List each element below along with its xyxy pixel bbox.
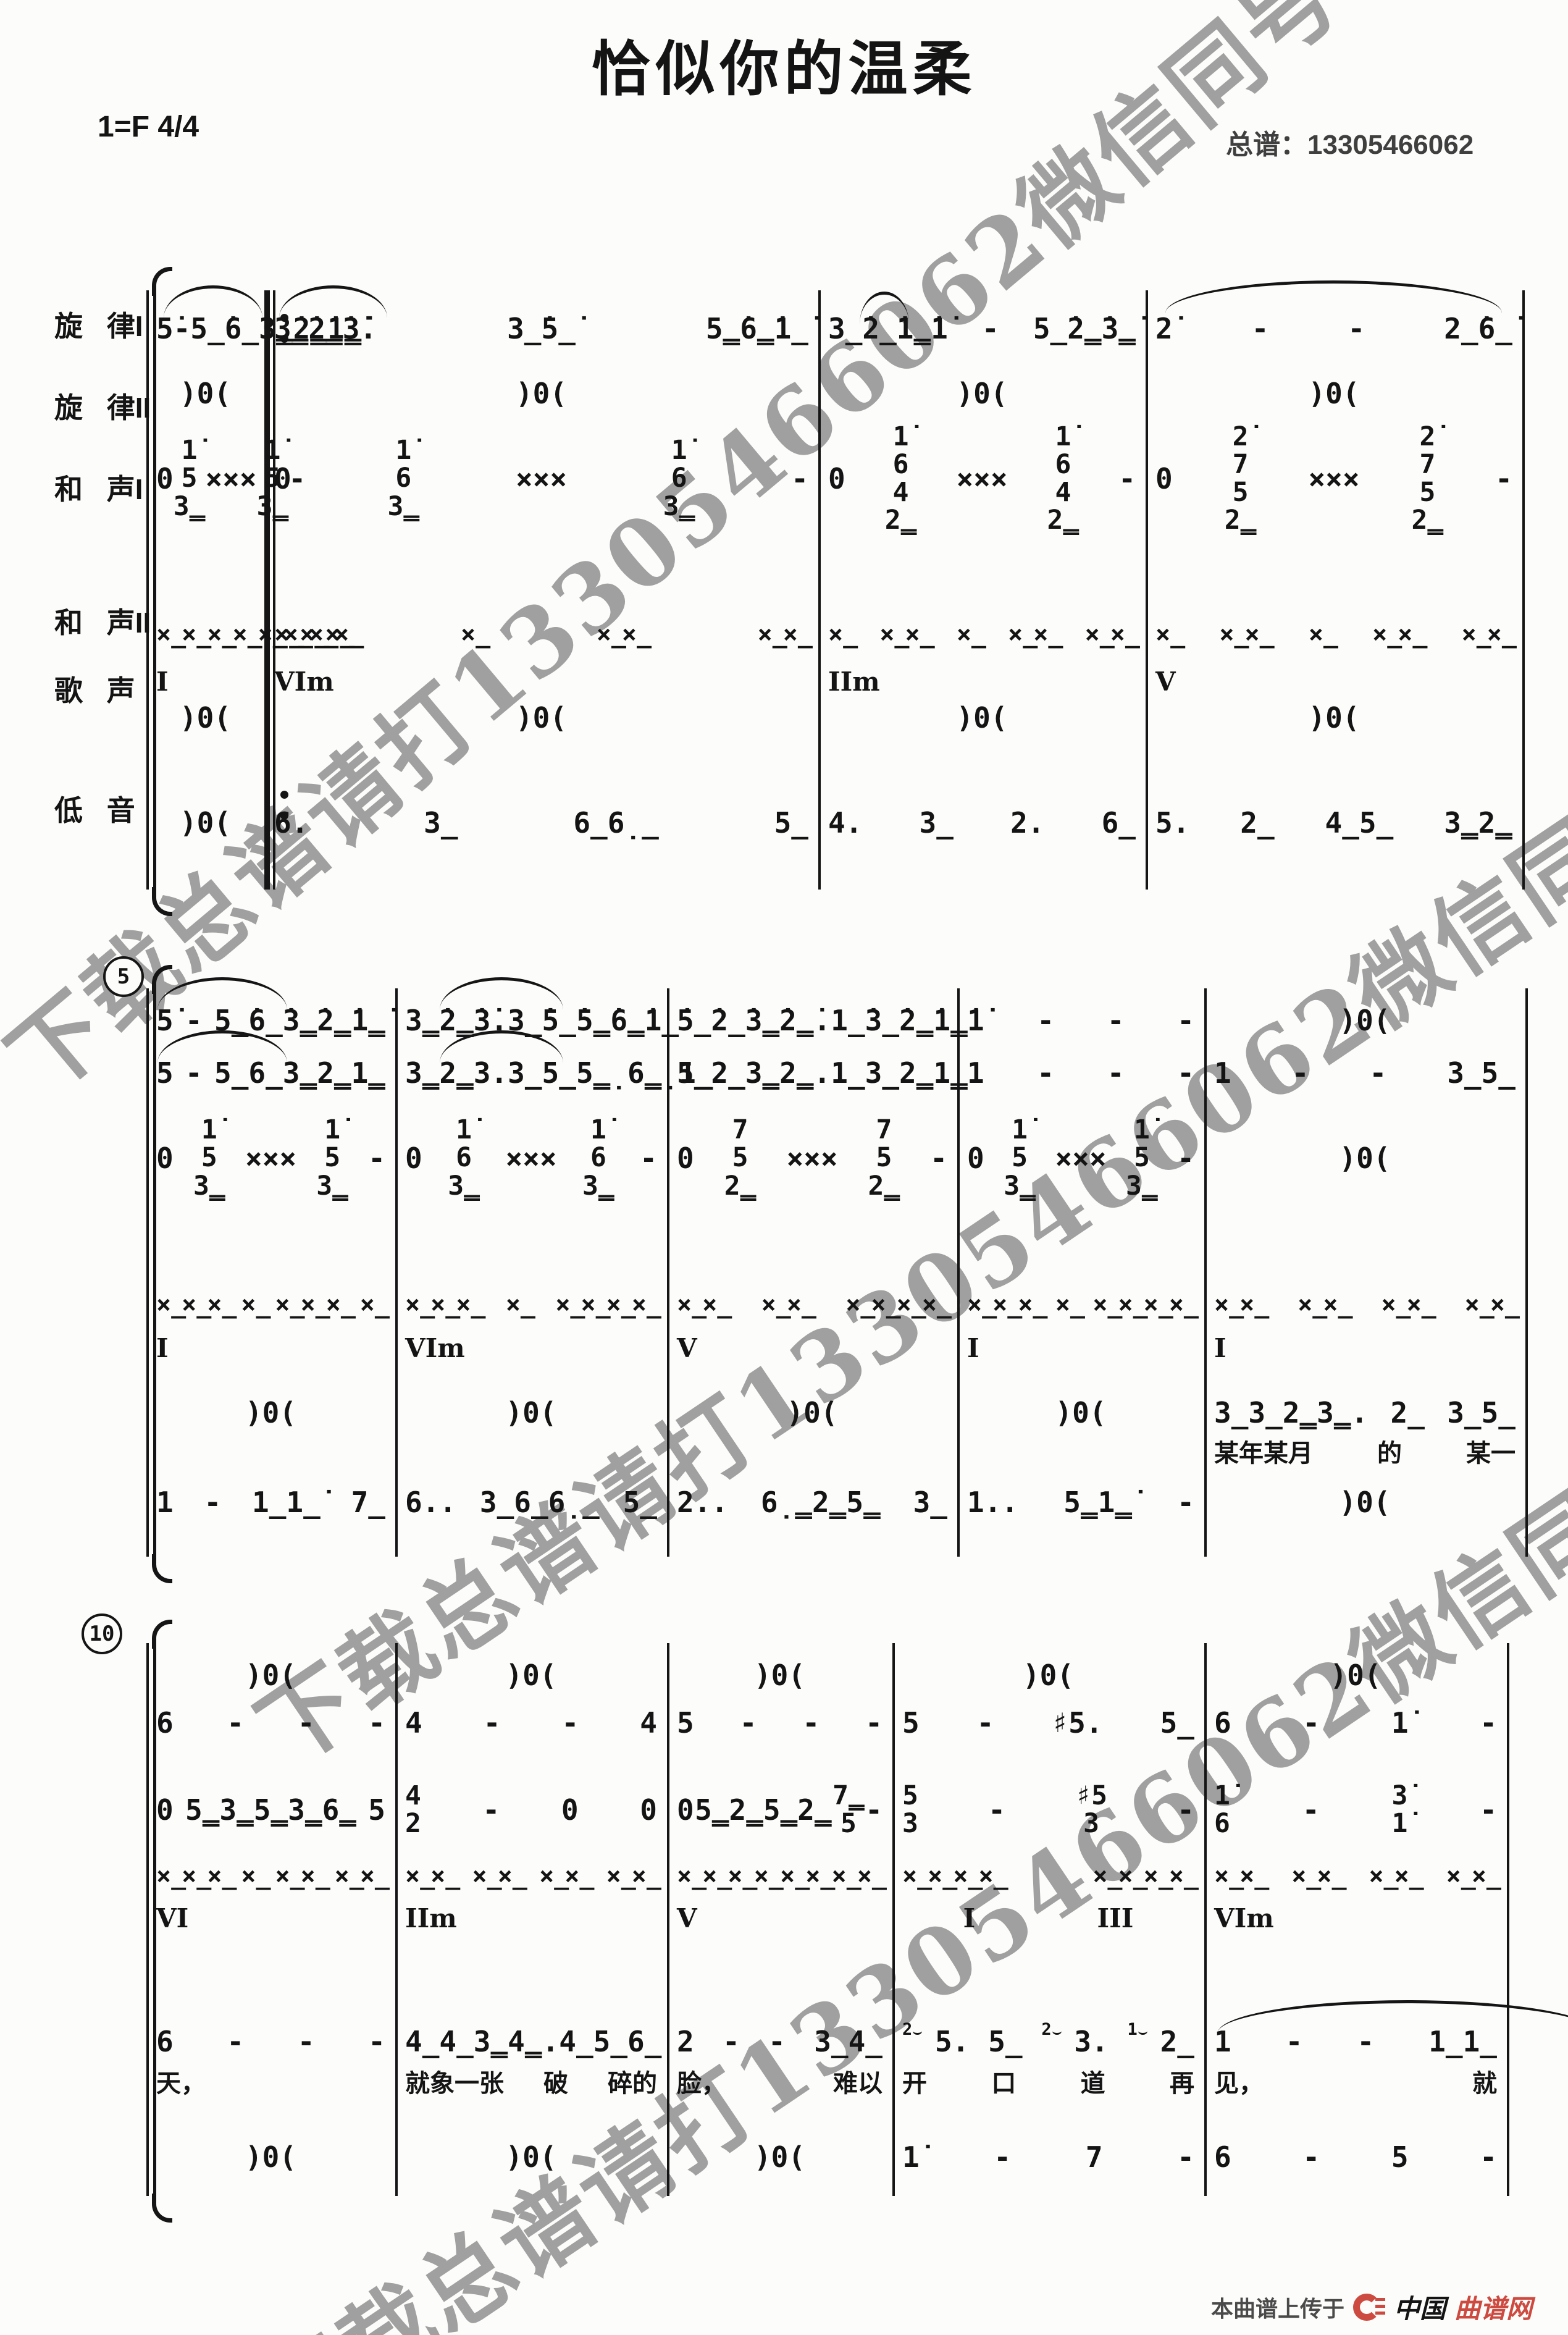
note-token: )0( (1339, 1486, 1390, 1519)
note-token: - (1107, 1056, 1125, 1090)
measure-cell: VI (146, 1895, 395, 1941)
chord-stack: 1̇53̳ (193, 1116, 225, 1200)
measure-cell: 0752̳×××752̳- (667, 1093, 957, 1223)
note-token: 0 (156, 1142, 174, 1175)
note-token: 4̲ (559, 2025, 593, 2058)
note-token: 7̲ (351, 1486, 385, 1519)
site-name-black: 中国 (1394, 2288, 1446, 2326)
note-token: ×̲×̲ (1462, 620, 1512, 649)
note-token: 7 (1086, 2140, 1103, 2174)
site-footer: 本曲谱上传于 中国 曲谱网 (1211, 2288, 1532, 2326)
measure-cell: 就象一张破碎的 (395, 2058, 667, 2104)
note-token: 5̲̇2̲̇3̳̇2̳̇. (677, 1004, 831, 1037)
note-token: ××× (505, 1142, 556, 1175)
note-token: ×̲×̲ (1214, 1290, 1265, 1319)
note-token: - (1480, 1706, 1497, 1740)
measure-cell: 6..3̲6̲6̣̲5̲ (395, 1479, 667, 1525)
note-token: - (1177, 1486, 1194, 1519)
score-page: 恰似你的温柔 1=F 4/4 总谱：13305466062 下载总谱请打1330… (0, 0, 1568, 2335)
note-token: )0( (516, 701, 567, 734)
note-token: - (1480, 1793, 1497, 1827)
note-token: - (740, 1706, 757, 1740)
bracket-hook-top (152, 1620, 172, 1649)
note-token: 2̲ (1240, 806, 1274, 839)
measure-cell: 01̇53̳×××1̇53̳- (146, 1093, 395, 1223)
note-token: ×̲ (828, 620, 853, 649)
row-melody1: 5̇-5̲̇6̲̇3̳̇2̳̇1̳̇3̳̇2̳̇3̇.3̲̇5̲̇5̳̇6̳̇1… (146, 998, 1525, 1043)
note-token: 4 (640, 1706, 657, 1740)
chord-stack: 1̇63̳ (387, 437, 419, 520)
note-token: - (562, 1706, 579, 1740)
note-token: 3̲ (424, 806, 458, 839)
note-token: 2 (677, 2025, 694, 2058)
note-token: 5̳̇6̳̇1̲̇ (706, 312, 808, 345)
measure-cell: )0( (1204, 1479, 1525, 1525)
note-token: ××× (205, 462, 256, 495)
note-token: 难以 (833, 2063, 883, 2099)
note-token: - (484, 1706, 501, 1740)
score-phone-label: 总谱：13305466062 (1226, 122, 1474, 162)
note-token: - (368, 1142, 385, 1175)
bracket-hook-bottom (152, 887, 172, 916)
note-token: )0( (245, 2140, 296, 2174)
note-token: 5 (902, 1706, 920, 1740)
note-token: 6̣̳2̳5̳ (761, 1486, 881, 1519)
row-vlyrics: 某年某月的某一 (146, 1428, 1525, 1474)
chord-stack: 752̳ (868, 1116, 900, 1200)
note-token: ×̲×̲ (761, 1290, 812, 1319)
note-token: 0 (405, 1142, 422, 1175)
note-token: 0 (274, 462, 291, 495)
measure-cell: 4--4 (395, 1700, 667, 1746)
row-harmony2: ×̲×̲×̲×̲×̲×̲×̲×̲×̲×̲×̲×̲×̲×̲×̲×̲×̲×̲×̲×̲… (146, 1282, 1525, 1327)
note-token: 5̲̇2̳̇3̳̇ (1033, 312, 1136, 345)
note-token: ×̲×̲×̲ (156, 1862, 233, 1890)
row-melody2: )0()0()0()0( (146, 371, 1522, 416)
measure-cell: I (1204, 1325, 1525, 1371)
repeat-dot (280, 791, 288, 799)
note-token: ×̲ (233, 620, 258, 649)
note-token: - (865, 1706, 883, 1740)
measure-cell: 02̇752̳×××2̇752̳- (1146, 414, 1522, 544)
note-token: 0 (640, 1793, 657, 1827)
note-token: 5 (1391, 2140, 1409, 2174)
note-token: ×̲ (241, 1290, 266, 1319)
note-token: 3̲2̳1̳ (865, 1056, 968, 1090)
note-token: ×̲×̲ (1214, 1862, 1265, 1890)
note-token: 1̲̇ (831, 1004, 865, 1037)
chord-stack: 1̇63̳ (448, 1116, 480, 1200)
measure-cell: 某年某月的某一 (1204, 1428, 1525, 1474)
note-token: ×̲×̲ (1008, 620, 1059, 649)
note-token: V (677, 1333, 697, 1363)
note-token: ×̲ (506, 1290, 531, 1319)
note-token: )0( (786, 1396, 837, 1429)
measure-number-marker: 5 (103, 956, 144, 997)
note-token: ×̲×̲ (1298, 1290, 1348, 1319)
measure-cell: 01̇53̳×××1̇53̳- (957, 1093, 1204, 1223)
note-token: ×̲×̲×̲ (156, 1290, 233, 1319)
chord-stack: 1̇53̳ (1126, 1116, 1158, 1200)
note-token: ×̲×̲ (832, 1862, 883, 1890)
measure-cell: VIm (1204, 1895, 1507, 1941)
row-bass: )0(6.3̲6̲6̣̲5̲4.3̲2.6̲5.2̲4̲5̲3̳2̳ (146, 800, 1522, 846)
measure-cell: )0( (264, 371, 818, 416)
note-token: 4. (828, 806, 862, 839)
note-token: 1̇ (967, 1004, 984, 1037)
measure-cell (395, 1428, 667, 1474)
measure-cell: 2..6̣̳2̳5̳3̲ (667, 1479, 957, 1525)
note-token: 6.. (405, 1486, 456, 1519)
part-label-harmony2: 和 声II (54, 600, 199, 641)
note-token: 5̳1̳̇ (1063, 1486, 1132, 1519)
note-token: VIm (274, 667, 334, 697)
note-token: 6 (156, 1706, 174, 1740)
note-token: 开 (902, 2063, 927, 2099)
note-token: 2̇ (1155, 312, 1173, 345)
note-token: - (204, 1486, 222, 1519)
grace-note: 2 (1041, 2020, 1061, 2039)
measure-cell: ×̲×̲×̲×̲×̲×̲×̲×̲ (395, 1853, 667, 1899)
measure-cell: 6--- (146, 1700, 395, 1746)
note-token: I (156, 1333, 169, 1363)
note-token: 0 (677, 1142, 694, 1175)
note-token: 6 (1214, 2140, 1231, 2174)
note-token: 3̲ (920, 806, 954, 839)
note-token: ×̲×̲ (1372, 620, 1423, 649)
note-token: - (483, 1793, 500, 1827)
measure-cell: 1--3̲5̲ (1204, 1050, 1525, 1096)
slur-tie (1165, 280, 1502, 313)
measure-cell: )0( (395, 2134, 667, 2180)
measure-cell: IIII (892, 1895, 1204, 1941)
note-token: - (1177, 1793, 1194, 1827)
note-token: - (368, 2025, 385, 2058)
bracket-hook-top (152, 965, 172, 994)
note-token: )0( (754, 2140, 805, 2174)
note-token: I (963, 1903, 976, 1933)
measure-cell: V (667, 1325, 957, 1371)
note-token: 就 (1472, 2063, 1497, 2099)
note-token: 3̲3̲2̳3̳. (1214, 1396, 1368, 1429)
system-1: 5̇-5̲̇6̲̇3̳̇2̳̇1̳̇3̳̇2̳̇3̇.3̲̇5̲̇5̳̇6̳̇1… (146, 290, 1522, 890)
row-melody2: 6---4--45---5-♯5.5̲6-1̇- (146, 1700, 1507, 1746)
note-token: 道 (1081, 2063, 1105, 2099)
system-2: 55̇-5̲̇6̲̇3̳̇2̳̇1̳̇3̳̇2̳̇3̇.3̲̇5̲̇5̳̇6̳̇… (146, 988, 1525, 1557)
note-token: 5. (935, 2025, 969, 2058)
note-token: ×̲×̲ (1465, 1290, 1516, 1319)
note-token: 破 (543, 2063, 568, 2099)
note-token: ××× (1055, 1142, 1106, 1175)
note-token: 5̲ (774, 806, 808, 839)
measure-cell: )0( (395, 1652, 667, 1698)
measure-cell: 4̲4̲3̳4̳.4̲5̲6̲ (395, 2019, 667, 2064)
measure-cell: ×̲×̲×̲×̲×̲×̲×̲×̲ (818, 612, 1146, 657)
measure-cell: ×̲×̲×̲×̲×̲×̲×̲×̲ (892, 1853, 1204, 1899)
chord-stack: 1̇53̳ (1004, 1116, 1036, 1200)
chord-stack: 1̇63̳ (663, 437, 695, 520)
measure-cell: 天， (146, 2058, 395, 2104)
measure-cell: 6--- (146, 2019, 395, 2064)
key-signature: 1=F 4/4 (98, 110, 199, 144)
note-token: I (1214, 1333, 1226, 1363)
note-token: - (723, 2025, 740, 2058)
note-token: ×̲×̲ (606, 1862, 657, 1890)
row-melody1: )0()0()0()0()0( (146, 1652, 1507, 1698)
note-token: ×̲×̲ (1219, 620, 1270, 649)
uploaded-by-text: 本曲谱上传于 (1211, 2291, 1344, 2323)
slur-tie (1218, 2000, 1568, 2033)
note-token: 0 (156, 1793, 174, 1827)
chord-stack: ♯53 (1075, 1782, 1107, 1838)
note-token: )0( (245, 1396, 296, 1429)
note-token: - (1495, 462, 1512, 495)
measure-cell: 5̲2̲3̳2̳.1̲3̲2̳1̳ (667, 1050, 957, 1096)
note-token: )0( (956, 377, 1007, 410)
site-name-red: 曲谱网 (1454, 2288, 1532, 2326)
note-token: 1̇ (1391, 1706, 1409, 1740)
part-label-melody2: 旋 律II (54, 385, 199, 426)
chord-stack: 1̇642̳ (1047, 423, 1080, 535)
bracket-hook-top (152, 267, 172, 296)
chord-stack: 7̳5 (832, 1782, 865, 1838)
note-token: - (994, 2140, 1011, 2174)
row-bass: 1-1̲1̲̇7̲6..3̲6̲6̣̲5̲2..6̣̳2̳5̳3̲1..5̳1̇… (146, 1479, 1525, 1525)
note-token: 3̲5̲ (1447, 1056, 1516, 1090)
note-token: - (1177, 1004, 1194, 1037)
slur-tie (860, 292, 909, 324)
note-token: 的 (1377, 1433, 1402, 1469)
chord-stack: 42 (405, 1782, 421, 1838)
note-token: ×̲×̲ (677, 1290, 727, 1319)
note-token: 1̲ (831, 1056, 865, 1090)
measure-cell: ×̲×̲×̲×̲×̲×̲×̲×̲ (667, 1853, 892, 1899)
part-label-harmony1: 和 声I (54, 467, 199, 508)
note-token: IIm (405, 1903, 457, 1933)
note-token: 某年某月 (1214, 1433, 1313, 1469)
note-token: VI (156, 1903, 188, 1933)
note-token: 见， (1214, 2063, 1264, 2099)
note-token: ×̲×̲ (1381, 1290, 1432, 1319)
measure-cell: VIm (395, 1325, 667, 1371)
note-token: - (803, 1706, 820, 1740)
note-token: 6 (1214, 1706, 1231, 1740)
note-token: ××× (516, 462, 567, 495)
note-token: - (298, 2025, 315, 2058)
measure-cell: )0( (667, 2134, 892, 2180)
note-token: 某一 (1466, 1433, 1516, 1469)
measure-cell: )0( (264, 695, 818, 741)
note-token: 6̲ (1102, 806, 1136, 839)
note-token: - (988, 1793, 1005, 1827)
note-token: - (791, 462, 808, 495)
system-3: 10)0()0()0()0()0(6---4--45---5-♯5.5̲6-1̇… (146, 1643, 1507, 2196)
measure-cell: I (146, 1325, 395, 1371)
note-token: ×̲×̲×̲×̲ (1092, 1862, 1194, 1890)
measure-cell: ×̲×̲×̲×̲×̲×̲×̲×̲ (395, 1282, 667, 1327)
note-token: 0 (828, 462, 845, 495)
note-token: - (1302, 1793, 1320, 1827)
note-token: 4 (405, 1706, 422, 1740)
note-token: 3̲5̲ (1447, 1396, 1516, 1429)
note-token: - (1118, 462, 1136, 495)
chord-stack: 1̇6 (1214, 1782, 1230, 1838)
measure-cell: ×̲×̲×̲×̲×̲×̲×̲×̲ (1204, 1853, 1507, 1899)
measure-cell: 01̇642̳×××1̇642̳- (818, 414, 1146, 544)
note-token: )0( (1308, 701, 1359, 734)
note-token: ××× (245, 1142, 296, 1175)
note-token: ×̲×̲×̲ (405, 1290, 482, 1319)
note-token: )0( (1330, 1659, 1381, 1692)
note-token: 2̲ (1391, 1396, 1425, 1429)
note-token: 5 (368, 1793, 385, 1827)
measure-cell: ×̲×̲×̲×̲×̲×̲×̲×̲ (264, 612, 818, 657)
note-token: ×̲×̲ (597, 620, 647, 649)
note-token: 碎的 (608, 2063, 657, 2099)
measure-number-marker: 10 (82, 1613, 122, 1654)
note-token: ×̲×̲×̲ (275, 1290, 351, 1319)
note-token: )0( (505, 1396, 556, 1429)
measure-cell: ×̲×̲×̲×̲×̲×̲×̲×̲ (1146, 612, 1522, 657)
slur-tie (440, 977, 563, 1010)
note-token: 1 (1214, 1056, 1231, 1090)
note-token: - (227, 2025, 244, 2058)
note-token: ×̲×̲ (539, 1862, 590, 1890)
note-token: - (1177, 1056, 1194, 1090)
measure-cell: 25.5̲23.12̲ (892, 2019, 1204, 2064)
note-token: 3̲ (913, 1486, 947, 1519)
note-token: )0( (754, 1659, 805, 1692)
note-token: 3̲̇5̲̇ (507, 312, 576, 345)
chord-stack: 2̇752̳ (1225, 423, 1257, 535)
measure-cell: )0( (146, 2134, 395, 2180)
measure-cell: V (667, 1895, 892, 1941)
note-token: - (1369, 1056, 1386, 1090)
note-token: - (982, 312, 999, 345)
measure-cell: 1̇--- (957, 998, 1204, 1043)
measure-cell: ×̲×̲×̲×̲×̲×̲×̲×̲ (146, 1853, 395, 1899)
measure-cell: 1̇-7- (892, 2134, 1204, 2180)
measure-cell: )0( (1146, 695, 1522, 741)
note-token: 5̳3̳5̳3̳6̳ (185, 1793, 356, 1827)
note-token: )0( (505, 2140, 556, 2174)
row-harmony1: 01̇53̳×××1̇53̳-01̇63̳×××1̇63̳-0752̳×××75… (146, 1093, 1525, 1223)
note-token: 3̲̇2̳̇1̳̇ (865, 1004, 968, 1037)
note-token: - (977, 1706, 994, 1740)
measure-cell (146, 1428, 395, 1474)
row-harmony2: ×̲×̲×̲×̲×̲×̲×̲×̲×̲×̲×̲×̲×̲×̲×̲×̲×̲×̲×̲×̲… (146, 1853, 1507, 1899)
note-token: 口 (991, 2063, 1016, 2099)
note-token: - (1348, 312, 1365, 345)
note-token: ×̲×̲×̲ (967, 1290, 1044, 1319)
note-token: ×̲ (360, 1290, 385, 1319)
note-token: 2. (1010, 806, 1044, 839)
note-token: ×̲×̲ (1085, 620, 1136, 649)
note-token: 1 (156, 1486, 174, 1519)
measure-cell (957, 1428, 1204, 1474)
measure-cell: 1-1̲1̲̇7̲ (146, 1479, 395, 1525)
note-token: ×̲ (957, 620, 982, 649)
measure-cell: 1..5̳1̳̇- (957, 1479, 1204, 1525)
note-token: - (227, 1706, 244, 1740)
grace-note: 2 (902, 2020, 922, 2039)
note-token: 6. (274, 806, 308, 839)
note-token: 4̲5̲ (1325, 806, 1394, 839)
note-token: - (768, 2025, 786, 2058)
note-token: )0( (1339, 1004, 1390, 1037)
note-token: V (677, 1903, 697, 1933)
system-end-barline (1525, 988, 1528, 1557)
note-token: - (1302, 1706, 1320, 1740)
note-token: - (640, 1142, 657, 1175)
note-token: IIm (828, 667, 880, 697)
note-token: ×̲×̲ (1291, 1862, 1342, 1890)
note-token: I (967, 1333, 979, 1363)
measure-cell: 5̲̇2̲̇3̳̇2̳̇.1̲̇3̲̇2̳̇1̳̇ (667, 998, 957, 1043)
note-token: - (1177, 2140, 1194, 2174)
row-vlyrics: 天，就象一张破碎的脸，难以开口道再见，就 (146, 2058, 1507, 2104)
note-token: - (930, 1142, 947, 1175)
measure-cell: )0( (667, 1652, 892, 1698)
note-token: ××× (1308, 462, 1359, 495)
note-token: 0 (967, 1142, 984, 1175)
note-token: ♯5. (1051, 1706, 1102, 1740)
note-token: 3̳2̳ (1444, 806, 1512, 839)
note-token: ×̲×̲ (758, 620, 808, 649)
measure-cell: )0( (892, 1652, 1204, 1698)
note-token: 5̲ (623, 1486, 657, 1519)
note-token: 5. (1155, 806, 1189, 839)
note-token: ×̲ (1055, 1290, 1081, 1319)
note-token: 1.. (967, 1486, 1018, 1519)
slur-tie (279, 285, 387, 318)
measure-cell: 6-5- (1204, 2134, 1507, 2180)
measure-cell: 1--- (957, 1050, 1204, 1096)
note-token: 1̇ (902, 2140, 920, 2174)
note-token: 5̲ (1160, 1706, 1194, 1740)
note-token: 1 (967, 1056, 984, 1090)
slur-tie (157, 977, 287, 1010)
note-token: ×̲ (754, 1862, 779, 1890)
note-token: VIm (1214, 1903, 1274, 1933)
note-token: 5̲2̲3̳2̳. (677, 1056, 831, 1090)
measure-cell: 5--- (667, 1700, 892, 1746)
measure-cell (667, 1428, 957, 1474)
note-token: - (1480, 2140, 1497, 2174)
note-token: 3̲6̲6̣̲ (480, 1486, 600, 1519)
note-token: 5̲6̲ (593, 2025, 662, 2058)
note-token: 就象一张 (405, 2063, 504, 2099)
note-token: )0( (1339, 1142, 1390, 1175)
note-token: ×̲×̲×̲×̲ (845, 1290, 947, 1319)
measure-cell: )0( (1204, 1093, 1525, 1223)
note-token: 2.. (677, 1486, 728, 1519)
note-token: - (368, 1706, 385, 1740)
note-token: 3. (1074, 2025, 1108, 2058)
measure-cell: 6-1̇- (1204, 1700, 1507, 1746)
row-bass: )0()0()0(1̇-7-6-5- (146, 2134, 1507, 2180)
note-token: - (1037, 1056, 1054, 1090)
site-logo-icon (1353, 2294, 1385, 2321)
row-chords: VIIImVIIIIVIm (146, 1895, 1507, 1941)
note-token: - (1037, 1004, 1054, 1037)
note-token: 6 (156, 2025, 174, 2058)
note-token: ×̲ (1309, 620, 1334, 649)
measure-cell: 5.2̲4̲5̲3̳2̳ (1146, 800, 1522, 846)
note-token: - (1302, 2140, 1320, 2174)
note-token: )0( (1055, 1396, 1106, 1429)
note-token: 2̲ (1160, 2025, 1194, 2058)
